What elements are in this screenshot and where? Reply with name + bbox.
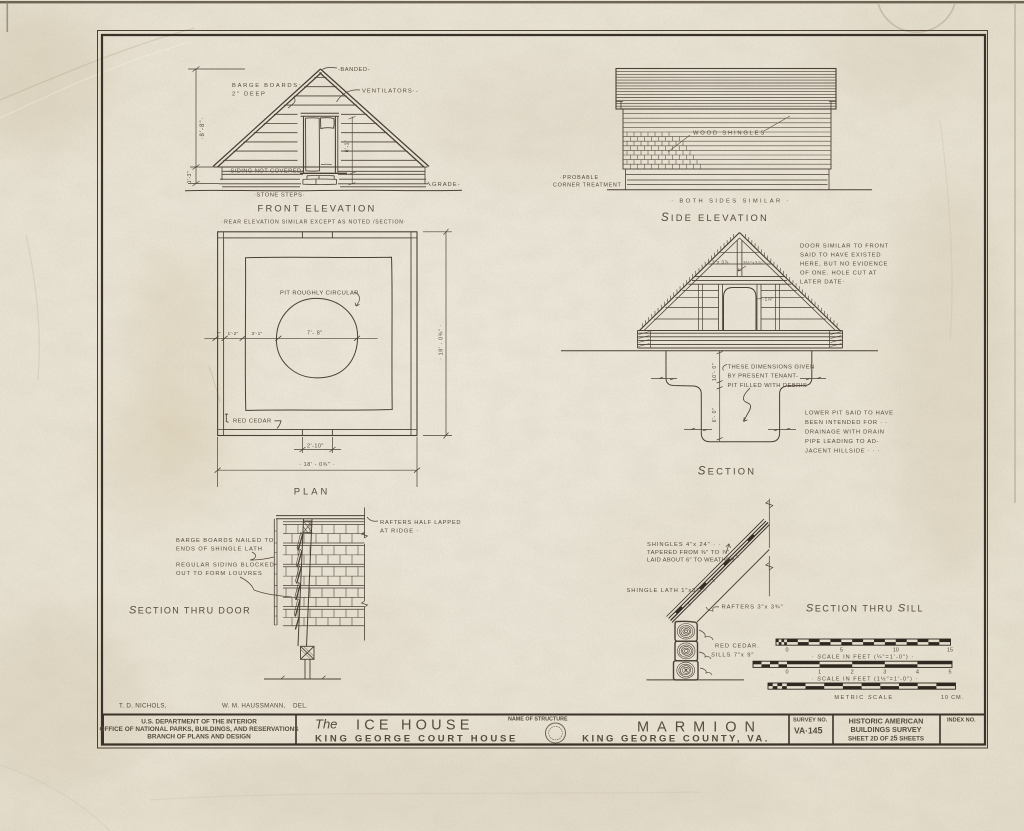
svg-text:JACENT HILLSIDE · · ·: JACENT HILLSIDE · · ·: [805, 449, 880, 455]
svg-text:AT RIDGE ·: AT RIDGE ·: [380, 529, 419, 535]
svg-text:WOOD SHINGLES: WOOD SHINGLES: [693, 131, 766, 137]
svg-text:·8'-8"·: ·8'-8"·: [200, 117, 206, 140]
svg-text:REGULAR SIDING BLOCKED: REGULAR SIDING BLOCKED: [176, 563, 275, 569]
svg-text:10: 10: [893, 648, 899, 654]
svg-text:BEEN INTENDED FOR · ·: BEEN INTENDED FOR · ·: [805, 420, 888, 426]
svg-text:LATER DATE·: LATER DATE·: [800, 280, 845, 286]
svg-text:2'-10": 2'-10": [307, 444, 324, 450]
svg-text:INDEX NO.: INDEX NO.: [947, 718, 976, 724]
svg-text:5: 5: [948, 670, 951, 676]
svg-text:HERE, BUT NO EVIDENCE: HERE, BUT NO EVIDENCE: [800, 262, 888, 268]
svg-text:· 18' - 0¾" ·: · 18' - 0¾" ·: [299, 462, 335, 468]
svg-text:GRADE-: GRADE-: [432, 182, 461, 188]
svg-text:U.S. DEPARTMENT OF THE INTERIO: U.S. DEPARTMENT OF THE INTERIOR: [141, 719, 257, 726]
svg-text:· BOTH SIDES SIMILAR ·: · BOTH SIDES SIMILAR ·: [671, 199, 791, 205]
svg-text:·PROBABLE: ·PROBABLE: [560, 175, 599, 181]
svg-text:·1⅞": ·1⅞": [763, 296, 773, 302]
svg-text:ICE HOUSE: ICE HOUSE: [356, 718, 474, 734]
svg-text:W. M. HAUSSMANN,: W. M. HAUSSMANN,: [222, 703, 286, 710]
svg-text:1'-2": 1'-2": [228, 331, 239, 337]
svg-text:PIT FILLED WITH DEBRIS: PIT FILLED WITH DEBRIS: [728, 383, 808, 389]
svg-text:2" DEEP: 2" DEEP: [232, 92, 267, 98]
svg-text:OFFICE OF NATIONAL PARKS, BUIL: OFFICE OF NATIONAL PARKS, BUILDINGS, AND…: [100, 726, 300, 733]
svg-text:· SCALE IN FEET (1½"=1'-0") ·: · SCALE IN FEET (1½"=1'-0") ·: [812, 676, 919, 683]
svg-text:BRANCH OF PLANS AND DESIGN: BRANCH OF PLANS AND DESIGN: [147, 734, 251, 741]
svg-text:SECTION THRU DOOR: SECTION THRU DOOR: [129, 605, 251, 617]
svg-text:OF ONE. HOLE CUT AT: OF ONE. HOLE CUT AT: [800, 271, 877, 277]
svg-text:OUT TO FORM LOUVRES: OUT TO FORM LOUVRES: [176, 571, 263, 577]
svg-text:TAPERED FROM ⅜" TO ⅞": TAPERED FROM ⅜" TO ⅞": [647, 550, 730, 556]
svg-text:0: 0: [785, 648, 788, 654]
svg-text:KING GEORGE COURT HOUSE: KING GEORGE COURT HOUSE: [315, 734, 518, 745]
svg-text:·SIDING NOT COVERED·: ·SIDING NOT COVERED·: [228, 169, 304, 175]
svg-text:-BANDED-: -BANDED-: [338, 67, 370, 73]
svg-text:4: 4: [916, 670, 919, 676]
svg-text:15: 15: [947, 648, 953, 654]
svg-text:1: 1: [818, 670, 821, 676]
svg-text:SIDE ELEVATION: SIDE ELEVATION: [661, 212, 769, 224]
svg-text:THESE DIMENSIONS GIVEN: THESE DIMENSIONS GIVEN: [728, 365, 815, 371]
svg-text:VENTILATORS·-: VENTILATORS·-: [362, 89, 419, 95]
svg-text:BUILDINGS SURVEY: BUILDINGS SURVEY: [851, 725, 922, 734]
svg-text:SILLS 7"x 9": SILLS 7"x 9": [711, 653, 754, 659]
svg-text:NAME OF STRUCTURE: NAME OF STRUCTURE: [508, 717, 568, 723]
svg-text:7'- 8": 7'- 8": [307, 331, 323, 337]
svg-text:5: 5: [840, 648, 843, 654]
svg-text:SHINGLES 4"x 24" · ·: SHINGLES 4"x 24" · ·: [647, 542, 721, 548]
svg-text:· 18' - 0⅜" ·: · 18' - 0⅜" ·: [439, 324, 445, 360]
svg-text:RAFTERS 3"x 3¾": RAFTERS 3"x 3¾": [722, 605, 784, 611]
svg-text:DEL.: DEL.: [293, 703, 308, 710]
svg-text:1'-3": 1'-3": [187, 171, 193, 183]
svg-text:10'- 0": 10'- 0": [712, 363, 718, 381]
svg-text:SHEET 2D OF 25 SHEETS: SHEET 2D OF 25 SHEETS: [848, 736, 924, 743]
svg-text:PIPE LEADING TO AD-: PIPE LEADING TO AD-: [805, 439, 879, 445]
svg-text:LOWER PIT SAID TO HAVE: LOWER PIT SAID TO HAVE: [805, 411, 894, 417]
svg-text:3: 3: [883, 670, 886, 676]
svg-text:VA·145: VA·145: [794, 726, 822, 736]
svg-text:CORNER TREATMENT: CORNER TREATMENT: [553, 183, 622, 189]
svg-text:SECTION: SECTION: [698, 466, 757, 478]
svg-text:7": 7": [217, 331, 222, 337]
svg-text:DRAINAGE WITH DRAIN: DRAINAGE WITH DRAIN: [805, 430, 885, 436]
svg-text:3'-1": 3'-1": [252, 331, 263, 337]
svg-text:FRONT ELEVATION: FRONT ELEVATION: [258, 203, 377, 214]
svg-text:PLAN: PLAN: [294, 486, 331, 497]
svg-text:RED CEDAR.: RED CEDAR.: [715, 644, 760, 650]
svg-text:10 CM.: 10 CM.: [941, 695, 964, 701]
svg-text:BY PRESENT TENANT-: BY PRESENT TENANT-: [728, 374, 799, 380]
svg-text:SAID TO HAVE EXISTED: SAID TO HAVE EXISTED: [800, 253, 881, 259]
svg-text:LAID ABOUT 6" TO WEATHER: LAID ABOUT 6" TO WEATHER: [647, 558, 735, 564]
svg-text:3½"x3⅞": 3½"x3⅞": [743, 260, 764, 266]
svg-text:6'-1": 6'-1": [345, 140, 351, 152]
svg-text:ENDS OF SHINGLE LATH: ENDS OF SHINGLE LATH: [176, 547, 263, 553]
svg-text:· SCALE IN FEET (¼"=1'-0") ·: · SCALE IN FEET (¼"=1'-0") ·: [812, 655, 914, 661]
svg-text:·STONE STEPS·: ·STONE STEPS·: [254, 193, 305, 199]
svg-text:SURVEY NO.: SURVEY NO.: [793, 718, 828, 724]
svg-text:2: 2: [851, 670, 854, 676]
svg-text:METRIC SCALE: METRIC SCALE: [834, 695, 893, 701]
svg-text:The: The: [315, 717, 337, 732]
svg-text:BARGE BOARDS-: BARGE BOARDS-: [232, 82, 302, 89]
svg-text:SECTION THRU SILL: SECTION THRU SILL: [806, 603, 924, 615]
svg-text:KING GEORGE COUNTY, VA.: KING GEORGE COUNTY, VA.: [582, 734, 770, 745]
svg-text:DOOR SIMILAR TO FRONT: DOOR SIMILAR TO FRONT: [800, 244, 889, 250]
svg-text:RAFTERS HALF LAPPED: RAFTERS HALF LAPPED: [380, 520, 461, 526]
svg-text:PIT ROUGHLY CIRCULAR: PIT ROUGHLY CIRCULAR: [280, 291, 359, 297]
svg-text:RED CEDAR: RED CEDAR: [233, 419, 272, 425]
svg-text:·REAR ELEVATION SIMILAR EXCEPT: ·REAR ELEVATION SIMILAR EXCEPT AS NOTED …: [222, 220, 407, 226]
svg-text:3"x 3⅞: 3"x 3⅞: [712, 260, 729, 265]
svg-text:T. D. NICHOLS,: T. D. NICHOLS,: [119, 703, 167, 710]
svg-text:0: 0: [785, 670, 788, 676]
svg-text:6'- 0": 6'- 0": [712, 408, 718, 423]
svg-text:SHINGLE LATH 1"x3¾"·: SHINGLE LATH 1"x3¾"·: [627, 588, 708, 594]
svg-text:BARGE BOARDS NAILED TO: BARGE BOARDS NAILED TO: [176, 538, 274, 544]
